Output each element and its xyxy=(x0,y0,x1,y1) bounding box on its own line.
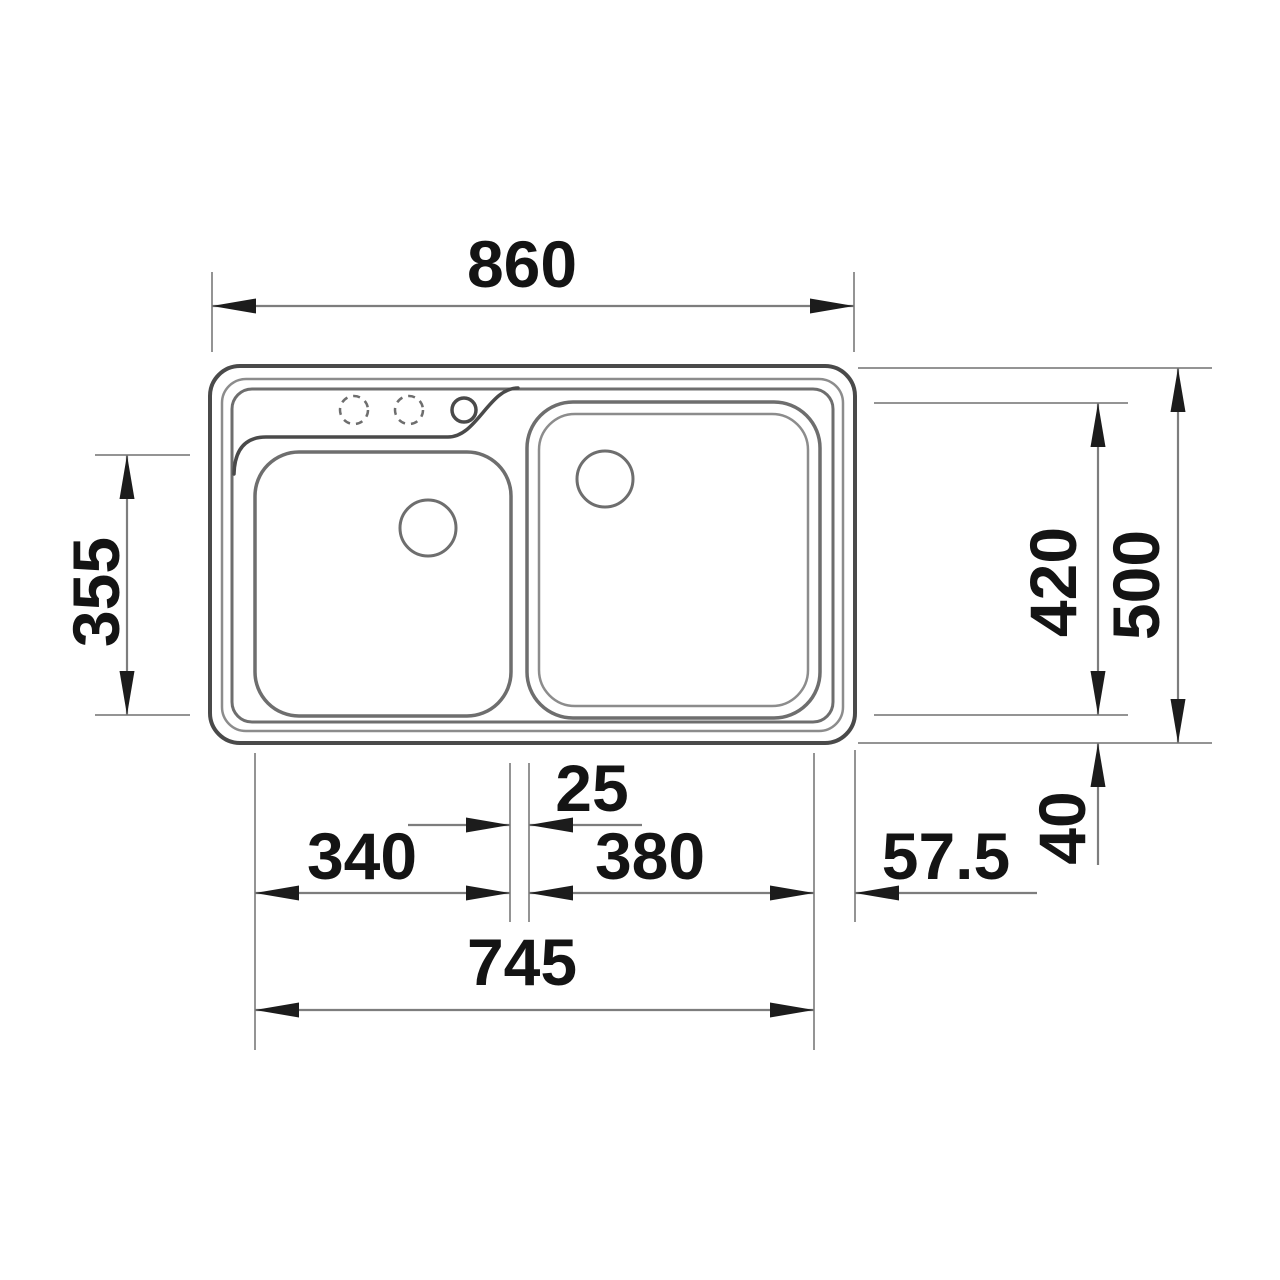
arrowhead-right xyxy=(466,818,510,833)
dim-label-bottom-edge-offset: 40 xyxy=(1025,791,1099,864)
arrowhead-down xyxy=(1171,699,1186,743)
dim-label-right-bowl-width: 380 xyxy=(595,819,705,893)
right-bowl-inner xyxy=(539,414,808,706)
basin-depression-outline xyxy=(232,389,833,722)
left-bowl xyxy=(255,452,511,716)
dim-overall-width: 860 xyxy=(212,227,854,352)
dim-label-bowl-gap: 25 xyxy=(555,751,628,825)
arrowhead-right xyxy=(810,299,854,314)
tap-hole xyxy=(452,398,476,422)
dim-label-overall-depth: 500 xyxy=(1099,530,1173,640)
arrowhead-up xyxy=(1171,368,1186,412)
arrowhead-left xyxy=(255,1003,299,1018)
arrowhead-left xyxy=(255,886,299,901)
arrowhead-left xyxy=(529,886,573,901)
arrowhead-up xyxy=(1091,403,1106,447)
arrowhead-left xyxy=(212,299,256,314)
dim-bottom-edge-offset: 40 xyxy=(1025,743,1106,865)
arrowhead-down xyxy=(120,671,135,715)
dim-label-overall-width: 860 xyxy=(467,227,577,301)
dim-right-bowl-depth: 420 xyxy=(874,403,1128,715)
dim-label-left-bowl-depth: 355 xyxy=(59,537,133,647)
sink-rim-inner-edge xyxy=(222,379,843,731)
optional-tap-hole-2 xyxy=(395,396,423,424)
arrowhead-down xyxy=(1091,671,1106,715)
drawing-canvas: 860 355 420 500 40 xyxy=(0,0,1280,1280)
right-bowl-outer xyxy=(527,402,820,718)
arrowhead-right xyxy=(770,886,814,901)
tap-ledge-divider-line xyxy=(234,388,518,474)
dim-label-right-edge-offset: 57.5 xyxy=(882,819,1010,893)
right-drain-hole xyxy=(577,451,633,507)
arrowhead-up xyxy=(1091,743,1106,787)
arrowhead-right xyxy=(770,1003,814,1018)
optional-tap-hole-1 xyxy=(340,396,368,424)
dim-label-left-bowl-width: 340 xyxy=(307,819,417,893)
dim-label-right-bowl-depth: 420 xyxy=(1016,527,1090,637)
dim-right-edge-offset: 57.5 xyxy=(855,819,1037,901)
left-drain-hole xyxy=(400,500,456,556)
sink-plan-view xyxy=(210,366,855,743)
arrowhead-up xyxy=(120,455,135,499)
sink-dimension-drawing: 860 355 420 500 40 xyxy=(0,0,1280,1280)
arrowhead-right xyxy=(466,886,510,901)
dim-label-bowls-overall-width: 745 xyxy=(467,925,577,999)
dim-left-bowl-depth: 355 xyxy=(59,455,190,715)
dim-bowls-overall-width: 745 xyxy=(255,925,814,1018)
